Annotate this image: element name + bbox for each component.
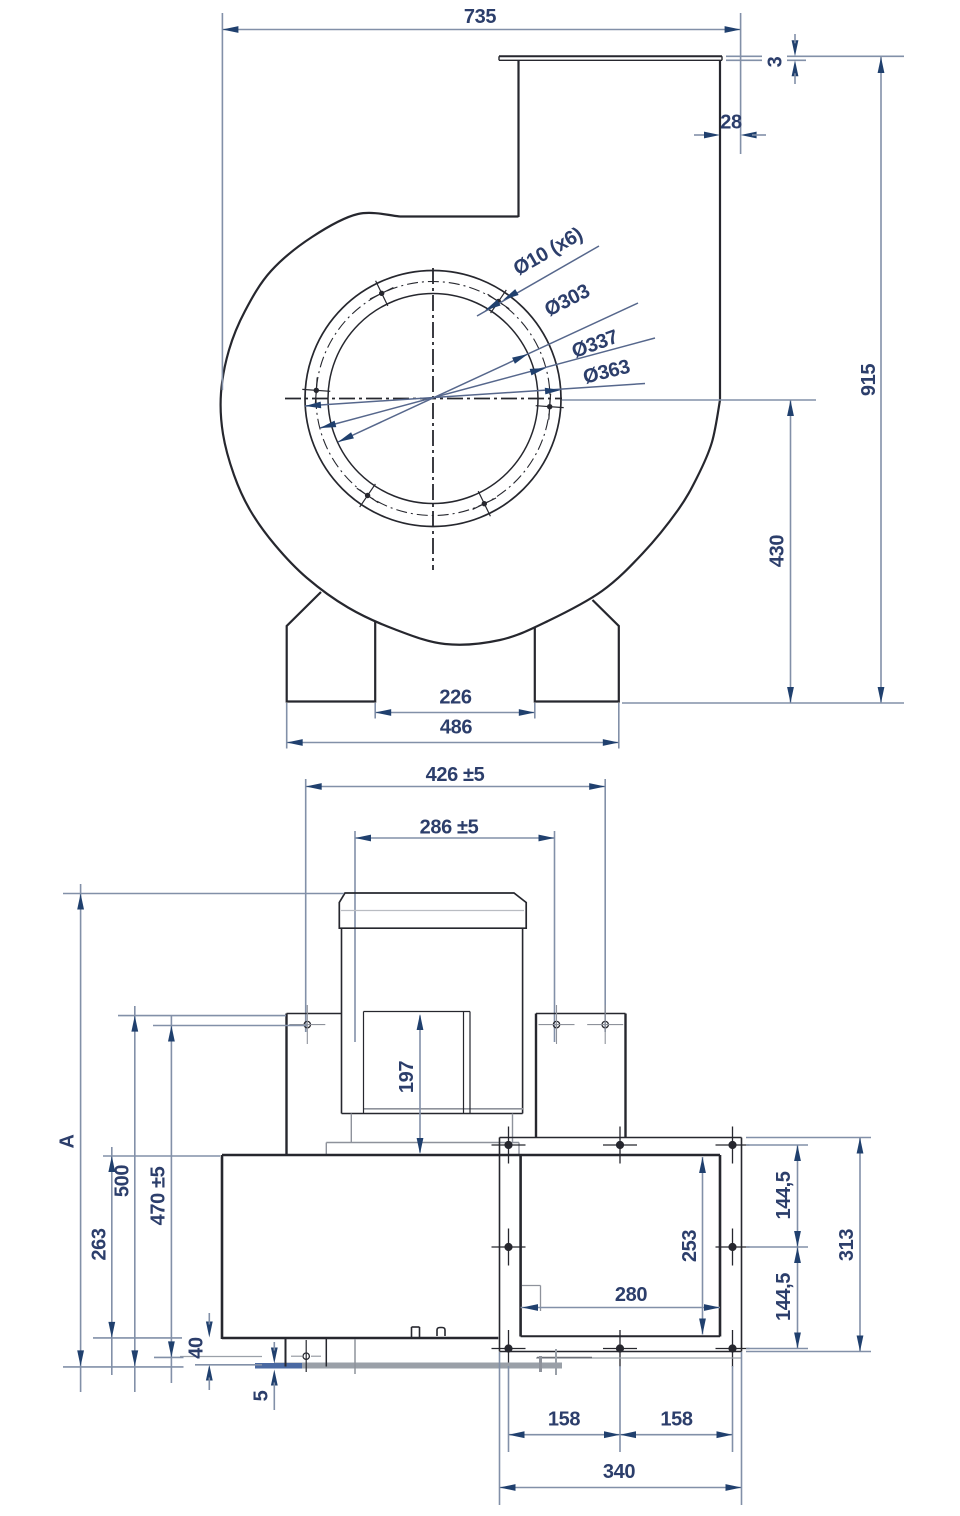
svg-text:470 ±5: 470 ±5 — [148, 1166, 170, 1225]
svg-text:40: 40 — [186, 1337, 208, 1359]
svg-text:144,5: 144,5 — [773, 1171, 795, 1219]
svg-text:486: 486 — [440, 717, 472, 739]
svg-text:197: 197 — [396, 1061, 418, 1093]
svg-text:226: 226 — [439, 687, 471, 709]
svg-text:28: 28 — [720, 112, 742, 134]
svg-text:A: A — [57, 1134, 79, 1148]
svg-text:313: 313 — [836, 1229, 858, 1261]
svg-text:735: 735 — [464, 6, 496, 28]
svg-text:426 ±5: 426 ±5 — [426, 764, 485, 786]
svg-text:340: 340 — [603, 1461, 635, 1483]
svg-text:158: 158 — [660, 1409, 692, 1431]
svg-text:3: 3 — [765, 56, 787, 67]
svg-text:253: 253 — [679, 1230, 701, 1262]
svg-text:5: 5 — [251, 1390, 273, 1401]
svg-text:158: 158 — [548, 1409, 580, 1431]
svg-text:915: 915 — [858, 364, 880, 396]
svg-text:144,5: 144,5 — [773, 1273, 795, 1321]
svg-text:263: 263 — [89, 1228, 111, 1260]
svg-text:286 ±5: 286 ±5 — [420, 817, 479, 839]
svg-text:500: 500 — [112, 1165, 134, 1197]
svg-text:430: 430 — [767, 535, 789, 567]
svg-text:280: 280 — [615, 1284, 647, 1306]
